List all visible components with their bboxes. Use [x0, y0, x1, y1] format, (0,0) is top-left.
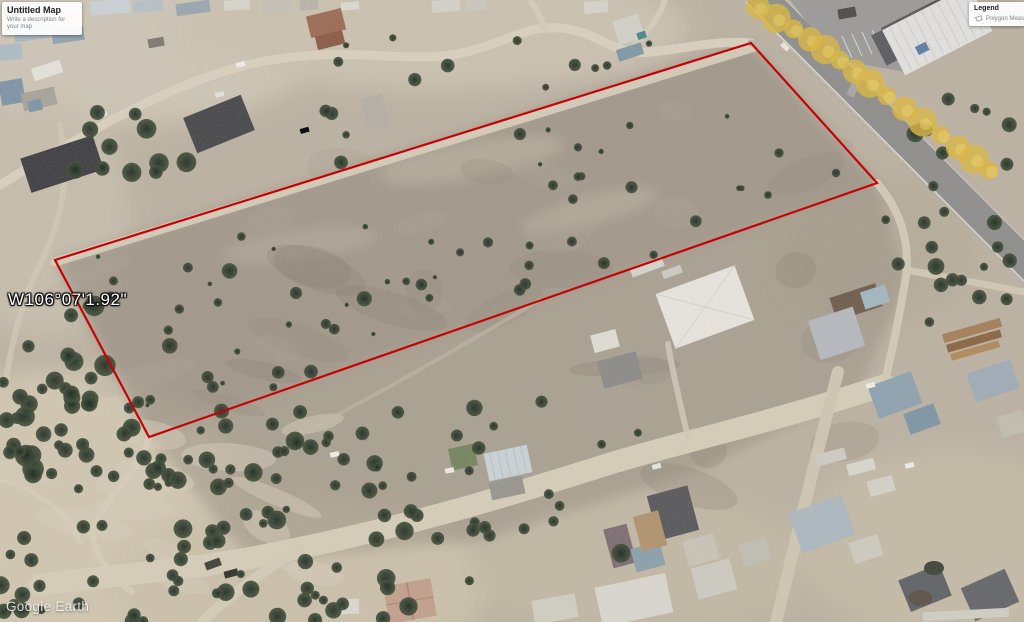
map-description-prompt[interactable]: Write a description for your map	[7, 17, 77, 30]
legend-item-label: Polygon Measure	[986, 16, 1024, 22]
legend-item-polygon-measure[interactable]: Polygon Measure	[974, 15, 1021, 22]
map-viewport: Untitled Map Write a description for you…	[0, 0, 1024, 622]
satellite-map-canvas[interactable]	[0, 0, 1024, 622]
map-title: Untitled Map	[7, 5, 77, 15]
legend-title: Legend	[974, 5, 1021, 12]
legend-panel: Legend Polygon Measure	[969, 2, 1024, 26]
coordinate-label: W106°07'1.92"	[8, 290, 127, 310]
polygon-icon	[974, 15, 983, 22]
map-title-panel[interactable]: Untitled Map Write a description for you…	[2, 2, 82, 35]
google-earth-watermark: Google Earth	[6, 599, 89, 614]
